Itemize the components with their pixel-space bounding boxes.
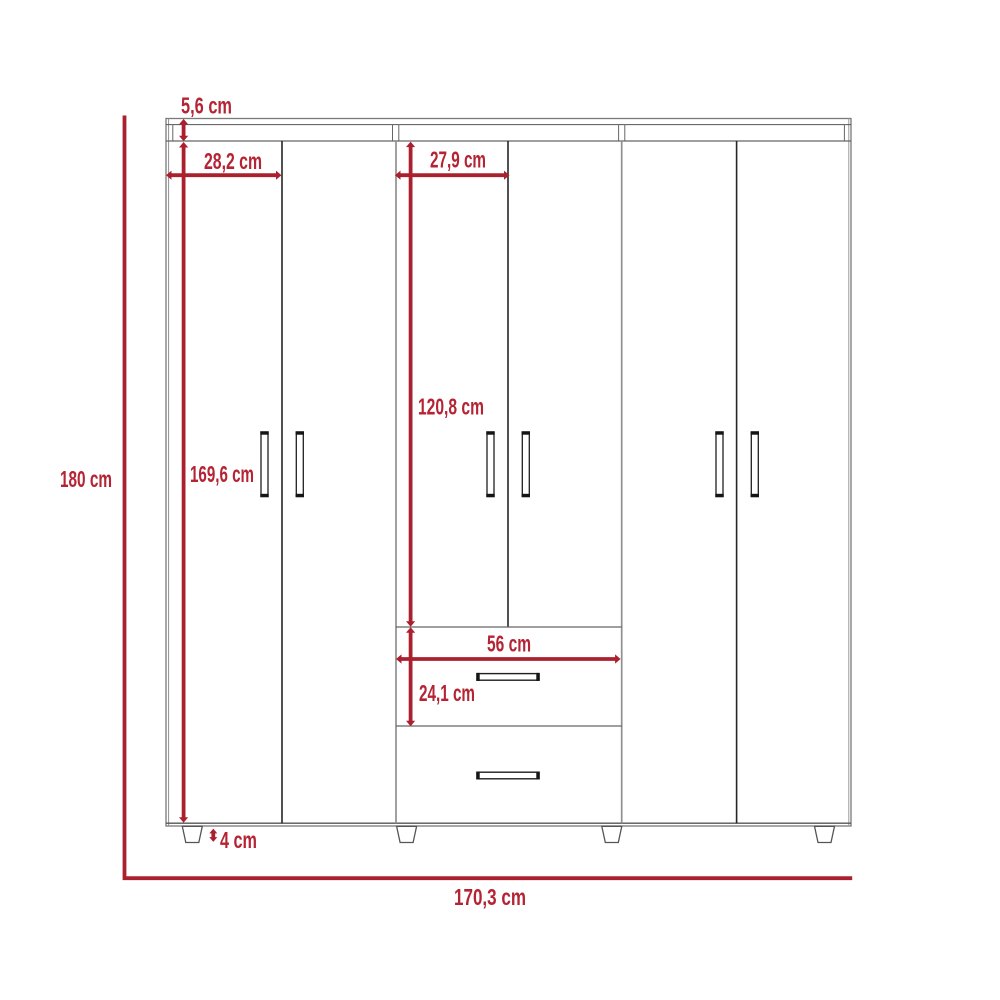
svg-text:180 cm: 180 cm bbox=[60, 466, 112, 492]
svg-text:169,6 cm: 169,6 cm bbox=[190, 461, 254, 487]
svg-text:56 cm: 56 cm bbox=[487, 631, 531, 657]
svg-text:4 cm: 4 cm bbox=[220, 827, 257, 853]
svg-text:27,9 cm: 27,9 cm bbox=[430, 147, 486, 173]
svg-text:120,8 cm: 120,8 cm bbox=[418, 394, 484, 420]
svg-text:28,2 cm: 28,2 cm bbox=[204, 148, 262, 174]
svg-text:170,3 cm: 170,3 cm bbox=[454, 884, 526, 910]
svg-text:24,1 cm: 24,1 cm bbox=[419, 680, 475, 706]
svg-text:5,6 cm: 5,6 cm bbox=[181, 93, 232, 119]
